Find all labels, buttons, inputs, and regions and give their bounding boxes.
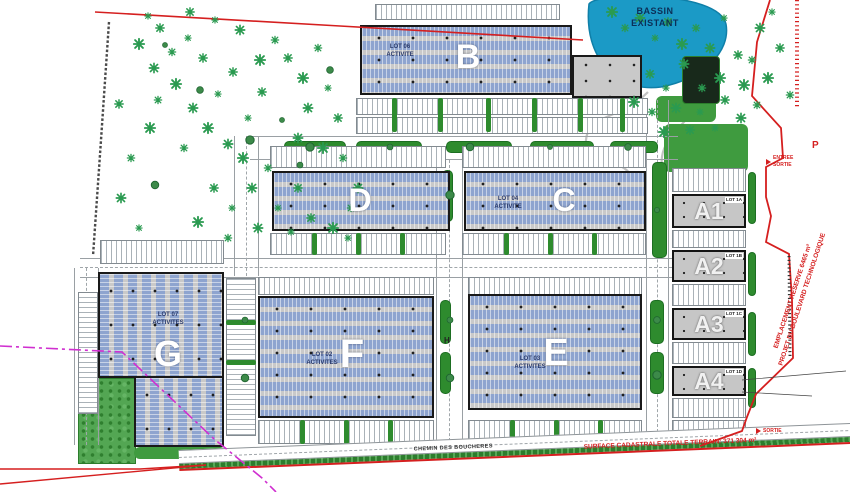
building-g-label: G <box>148 336 188 372</box>
green-strip <box>748 312 756 356</box>
reserved-strip-label: EMPLACEMENT RESERVE 6465 m² PROJET DU BO… <box>759 205 837 392</box>
green-median <box>650 352 664 394</box>
entry-green-area <box>664 124 748 172</box>
parking-row <box>468 277 642 295</box>
lot-chip-a4: LOT 1D <box>725 369 743 375</box>
green-strip <box>748 172 756 224</box>
parking-green-island <box>356 233 361 255</box>
parking-green-island <box>486 98 491 132</box>
parking-row <box>672 284 746 306</box>
parking-green-island <box>532 98 537 132</box>
road-edge <box>668 100 669 447</box>
parking-green-island <box>592 233 597 255</box>
sortie-text: SORTIE <box>763 428 782 434</box>
lot-label-c: LOT 04 ACTIVITE <box>480 196 536 211</box>
southwest-boundary-line <box>0 465 206 469</box>
fence-line <box>93 22 109 256</box>
entree-sortie-label: ENTREE SORTIE <box>766 155 793 168</box>
parking-row <box>462 233 646 255</box>
building-a2: A2 LOT 1B <box>672 250 746 282</box>
entree-sortie-text: ENTREE SORTIE <box>773 155 793 168</box>
building-d-label: D <box>340 184 380 216</box>
dimension-leaders <box>742 371 846 396</box>
lot-label-b: LOT 06 ACTIVITE <box>368 44 432 59</box>
lot-chip-a1: LOT 1A <box>725 197 743 203</box>
building-b-label: B <box>450 40 486 74</box>
parking-row <box>375 4 560 20</box>
green-strip <box>748 368 756 408</box>
parking-row <box>270 146 446 168</box>
parking-row <box>356 117 648 134</box>
lot-chip-a3: LOT 1C <box>725 311 743 317</box>
lot-label-f: LOT 02 ACTIVITES <box>294 352 350 367</box>
sortie-label: SORTIE <box>756 428 782 434</box>
building-c-label: C <box>544 184 584 216</box>
parking-row <box>100 240 224 264</box>
exit-arrow-icon <box>756 428 761 434</box>
site-plan-canvas: A1 LOT 1A A2 LOT 1B A3 LOT 1C A4 LOT 1D … <box>0 0 850 492</box>
road-edge <box>258 136 259 276</box>
building-a1: A1 LOT 1A <box>672 194 746 228</box>
parking-row <box>672 168 746 192</box>
bottom-road: CHEMIN DES BOUCHERES SURFACE CADASTRALE … <box>178 408 850 478</box>
parking-row <box>462 146 646 168</box>
parking-green-island <box>400 233 405 255</box>
building-a3-label: A3 <box>694 313 723 336</box>
parking-green-island <box>226 360 256 365</box>
parking-green-island <box>620 98 625 132</box>
entry-arrow-icon <box>766 159 771 165</box>
green-median <box>440 352 451 394</box>
reserve-line-1: EMPLACEMENT RESERVE 6465 m² <box>759 205 827 389</box>
parking-p-label: P <box>812 140 819 151</box>
building-a3: A3 LOT 1C <box>672 308 746 340</box>
reserve-line-2: PROJET DU BOULEVARD TECHNOLOGIQUE <box>768 208 836 392</box>
parking-row <box>672 342 746 364</box>
building-b-annex <box>572 55 642 98</box>
road-centerline <box>246 136 247 276</box>
road-edge <box>462 160 463 446</box>
parking-row <box>356 98 648 115</box>
hydrant-marker: H <box>444 336 450 345</box>
technical-structure <box>682 56 720 104</box>
parking-green-island <box>226 320 256 325</box>
road-edge <box>250 136 678 137</box>
parking-row <box>226 278 256 436</box>
parking-green-island <box>578 98 583 132</box>
parking-green-island <box>438 98 443 132</box>
lot-label-g: LOT 07 ACTIVITES <box>136 312 200 327</box>
green-median <box>650 300 664 344</box>
parking-green-island <box>392 98 397 132</box>
parking-row <box>78 292 98 414</box>
parking-green-island <box>504 233 509 255</box>
building-a4: A4 LOT 1D <box>672 366 746 396</box>
road-centerline <box>657 100 658 447</box>
parking-green-island <box>548 233 553 255</box>
road-edge <box>234 136 235 276</box>
green-median <box>652 162 667 258</box>
road-centerline <box>80 267 672 268</box>
parking-green-island <box>312 233 317 255</box>
building-a2-label: A2 <box>694 255 723 278</box>
parking-row <box>672 230 746 248</box>
building-a1-label: A1 <box>694 200 723 223</box>
pond-label: BASSIN EXISTANT <box>612 6 698 29</box>
parking-row <box>258 277 434 295</box>
green-strip <box>748 252 756 296</box>
road-edge <box>74 268 75 445</box>
lot-label-e: LOT 03 ACTIVITES <box>502 356 558 371</box>
lot-chip-a2: LOT 1B <box>725 253 743 259</box>
southwest-boundary-line <box>0 465 206 484</box>
building-a4-label: A4 <box>694 370 723 393</box>
